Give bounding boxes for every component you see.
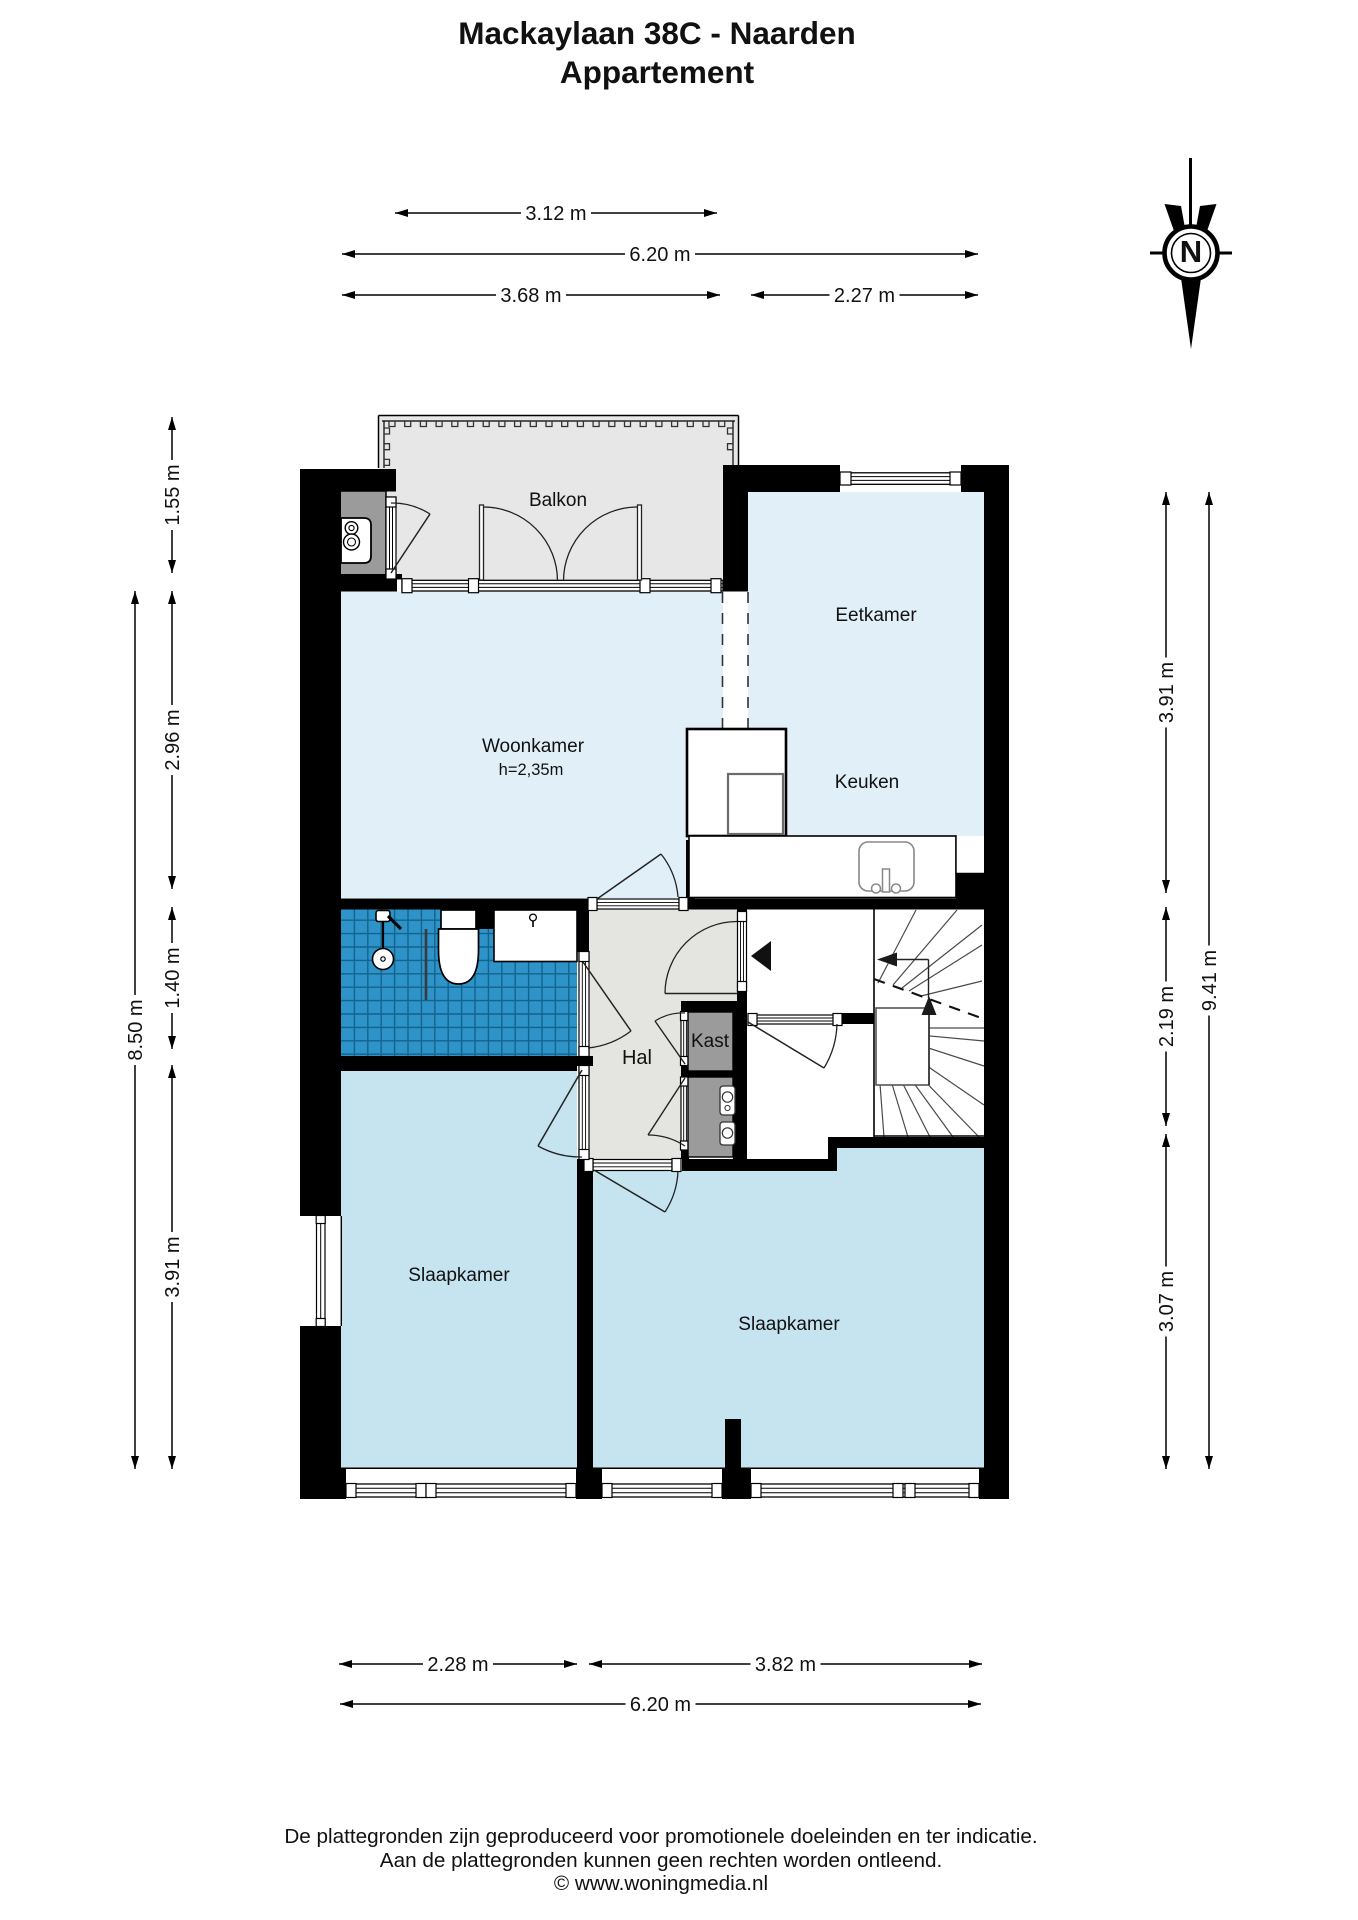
svg-text:Appartement: Appartement: [560, 54, 755, 90]
svg-text:2.19 m: 2.19 m: [1156, 986, 1178, 1047]
svg-text:9.41 m: 9.41 m: [1199, 950, 1221, 1011]
svg-text:Kast: Kast: [691, 1031, 730, 1052]
svg-text:Woonkamer: Woonkamer: [482, 736, 585, 757]
svg-text:Aan de plattegronden kunnen ge: Aan de plattegronden kunnen geen rechten…: [380, 1849, 942, 1872]
svg-text:De plattegronden zijn geproduc: De plattegronden zijn geproduceerd voor …: [284, 1825, 1037, 1848]
svg-text:1.40 m: 1.40 m: [162, 947, 184, 1008]
svg-text:3.68 m: 3.68 m: [500, 285, 561, 307]
svg-text:2.96 m: 2.96 m: [162, 709, 184, 770]
svg-text:6.20 m: 6.20 m: [630, 1694, 691, 1716]
svg-text:2.28 m: 2.28 m: [427, 1654, 488, 1676]
svg-text:N: N: [1180, 234, 1202, 269]
svg-text:h=2,35m: h=2,35m: [499, 761, 564, 779]
svg-text:Keuken: Keuken: [835, 772, 899, 793]
svg-text:1.55 m: 1.55 m: [162, 464, 184, 525]
svg-text:3.07 m: 3.07 m: [1156, 1271, 1178, 1332]
svg-text:Eetkamer: Eetkamer: [835, 605, 917, 626]
svg-text:3.82 m: 3.82 m: [755, 1654, 816, 1676]
svg-text:8.50 m: 8.50 m: [125, 999, 147, 1060]
svg-text:3.91 m: 3.91 m: [162, 1236, 184, 1297]
svg-text:3.91 m: 3.91 m: [1156, 662, 1178, 723]
svg-text:Mackaylaan 38C - Naarden: Mackaylaan 38C - Naarden: [458, 15, 855, 51]
svg-text:Slaapkamer: Slaapkamer: [738, 1314, 840, 1335]
svg-text:© www.woningmedia.nl: © www.woningmedia.nl: [554, 1872, 768, 1895]
svg-text:6.20 m: 6.20 m: [629, 244, 690, 266]
svg-text:2.27 m: 2.27 m: [834, 285, 895, 307]
svg-text:3.12 m: 3.12 m: [525, 203, 586, 225]
svg-text:Hal: Hal: [622, 1047, 652, 1069]
svg-text:Slaapkamer: Slaapkamer: [408, 1265, 510, 1286]
svg-text:Balkon: Balkon: [529, 490, 587, 511]
